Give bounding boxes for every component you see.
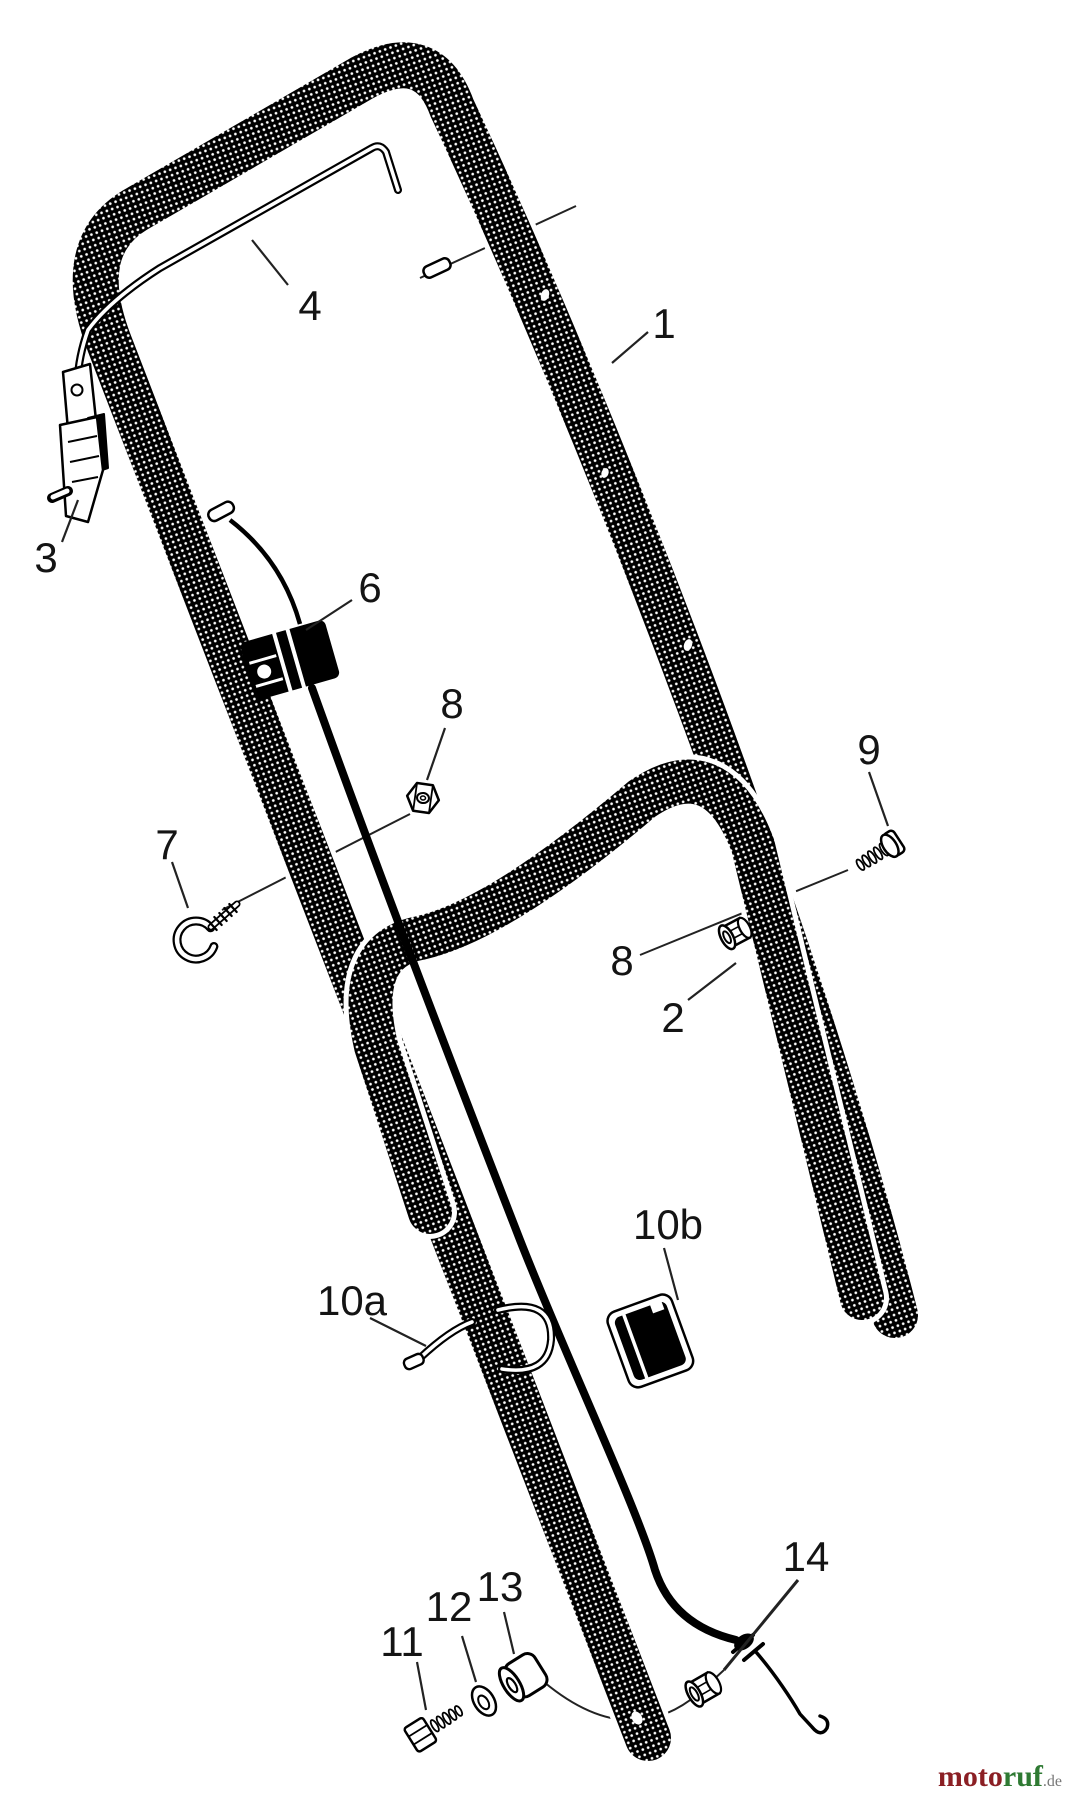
part-label-3: 3 xyxy=(34,537,57,579)
part-label-10a: 10a xyxy=(317,1280,387,1322)
part-label-14: 14 xyxy=(783,1536,830,1578)
part-label-4: 4 xyxy=(298,285,321,327)
part-label-6: 6 xyxy=(358,567,381,609)
cable-clamp xyxy=(239,617,341,703)
cable-clip xyxy=(605,1292,696,1390)
part-label-8a: 8 xyxy=(440,683,463,725)
leader-12 xyxy=(462,1636,476,1682)
watermark-logo: motoruf.de xyxy=(938,1762,1062,1792)
leader-10b xyxy=(664,1248,678,1300)
watermark-brand-part1: moto xyxy=(938,1760,1003,1793)
leader-4 xyxy=(252,240,288,285)
part-label-13: 13 xyxy=(477,1566,524,1608)
watermark-suffix: .de xyxy=(1043,1773,1062,1790)
leader-13 xyxy=(504,1612,514,1654)
part-label-1: 1 xyxy=(652,303,675,345)
leader-7 xyxy=(172,862,188,908)
part-label-10b: 10b xyxy=(633,1204,703,1246)
leader-11 xyxy=(417,1662,426,1710)
part-label-11: 11 xyxy=(380,1621,424,1663)
part-label-12: 12 xyxy=(426,1586,473,1628)
bolt-9 xyxy=(851,829,905,876)
watermark-brand-part2: ruf xyxy=(1003,1760,1043,1793)
eye-bolt xyxy=(177,904,237,959)
part-label-9: 9 xyxy=(857,729,880,771)
part-label-8b: 8 xyxy=(610,940,633,982)
diagram-canvas xyxy=(0,0,1086,1800)
guide-wire-nipple xyxy=(402,1352,425,1370)
eye-bolt-threads xyxy=(209,904,236,930)
spacer-13 xyxy=(495,1650,551,1704)
parts-diagram-image[interactable]: 1 2 3 4 6 7 8 8 9 10a 10b 11 12 13 14 mo… xyxy=(0,0,1086,1800)
bolt-11 xyxy=(404,1698,469,1753)
bolt-11-threads xyxy=(429,1704,464,1733)
leader-9 xyxy=(869,772,888,826)
leader-8a xyxy=(427,728,445,780)
part-label-2: 2 xyxy=(661,997,684,1039)
leader-1 xyxy=(612,332,648,363)
part-label-7: 7 xyxy=(155,824,178,866)
hex-nut-upper xyxy=(405,782,441,814)
leader-2 xyxy=(688,963,736,1000)
leader-6 xyxy=(306,600,352,630)
washer-12 xyxy=(467,1682,501,1720)
cable-end-barrel xyxy=(422,257,452,280)
